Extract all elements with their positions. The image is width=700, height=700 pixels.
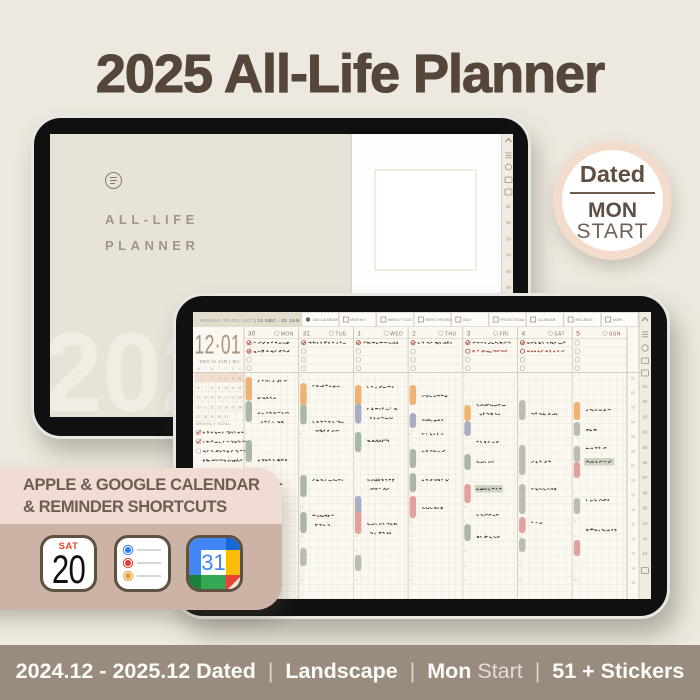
- svg-text:03: 03: [506, 236, 511, 241]
- svg-text:12: 12: [643, 551, 648, 556]
- svg-text:14: 14: [409, 563, 413, 567]
- svg-text:28: 28: [203, 415, 207, 419]
- svg-text:30: 30: [248, 331, 256, 338]
- svg-text:SAT: SAT: [554, 332, 565, 338]
- svg-text:11: 11: [300, 520, 303, 524]
- svg-text:04: 04: [643, 430, 648, 435]
- svg-text:5: 5: [239, 377, 241, 381]
- svg-text:3: 3: [225, 377, 227, 381]
- svg-text:13: 13: [409, 549, 413, 553]
- svg-text:15: 15: [300, 578, 304, 582]
- svg-text:31: 31: [303, 331, 311, 338]
- svg-text:12: 12: [355, 534, 359, 538]
- svg-text:01: 01: [506, 204, 511, 209]
- svg-text:13: 13: [197, 396, 201, 400]
- svg-text:10: 10: [631, 508, 635, 512]
- svg-text:08: 08: [643, 490, 648, 495]
- svg-text:SUN: SUN: [609, 332, 621, 338]
- svg-text:M: M: [197, 367, 200, 371]
- svg-text:TUE: TUE: [335, 332, 347, 338]
- svg-text:03: 03: [631, 406, 635, 410]
- svg-text:WEEKLY GOAL: WEEKLY GOAL: [196, 421, 231, 426]
- svg-text:11: 11: [409, 520, 412, 524]
- svg-text:04: 04: [631, 420, 635, 424]
- svg-text:WORK: WORK: [613, 318, 624, 322]
- svg-text:4: 4: [522, 331, 526, 338]
- svg-text:12: 12: [300, 534, 304, 538]
- svg-text:11: 11: [231, 386, 235, 390]
- svg-text:09: 09: [631, 493, 635, 497]
- svg-text:WED: WED: [390, 332, 403, 338]
- svg-text:WELLNESS: WELLNESS: [575, 318, 592, 322]
- svg-text:11: 11: [643, 536, 648, 541]
- svg-text:2: 2: [218, 377, 220, 381]
- svg-text:13: 13: [355, 549, 359, 553]
- svg-text:T: T: [218, 367, 220, 371]
- svg-text:10: 10: [224, 386, 228, 390]
- svg-text:15: 15: [631, 581, 635, 585]
- svg-text:30: 30: [217, 415, 221, 419]
- svg-text:06: 06: [631, 450, 635, 454]
- svg-text:12: 12: [519, 534, 523, 538]
- svg-text:05: 05: [506, 269, 511, 274]
- svg-text:02: 02: [506, 220, 511, 225]
- svg-text:13: 13: [300, 549, 304, 553]
- svg-text:04: 04: [506, 253, 511, 258]
- svg-text:3: 3: [467, 331, 471, 338]
- svg-text:12: 12: [409, 534, 413, 538]
- svg-text:31: 31: [201, 550, 225, 575]
- svg-text:03: 03: [643, 414, 648, 419]
- svg-text:WEEKLY TO-DO LIST | 12 DEC - 0: WEEKLY TO-DO LIST | 12 DEC - 01 JAN: [200, 318, 300, 324]
- svg-text:11: 11: [631, 523, 635, 527]
- svg-text:08: 08: [631, 479, 635, 483]
- svg-text:12: 12: [573, 534, 577, 538]
- svg-text:13: 13: [573, 549, 577, 553]
- svg-text:9: 9: [218, 386, 220, 390]
- svg-text:21: 21: [203, 405, 207, 409]
- svg-text:20: 20: [197, 405, 201, 409]
- svg-text:WEEKLY REVIEW: WEEKLY REVIEW: [425, 318, 451, 322]
- svg-text:CALENDAR: CALENDAR: [538, 318, 556, 322]
- svg-text:DAILY: DAILY: [463, 318, 473, 322]
- svg-text:02: 02: [643, 399, 648, 404]
- svg-text:MON: MON: [281, 332, 294, 338]
- svg-text:11: 11: [519, 520, 522, 524]
- svg-text:FRI: FRI: [500, 332, 510, 338]
- svg-text:06: 06: [643, 460, 648, 465]
- svg-text:PROJECT/GOAL: PROJECT/GOAL: [500, 318, 525, 322]
- svg-text:10: 10: [573, 505, 577, 509]
- svg-text:14: 14: [519, 563, 523, 567]
- svg-text:10: 10: [643, 521, 648, 526]
- svg-text:23: 23: [217, 405, 221, 409]
- svg-text:15: 15: [355, 578, 359, 582]
- svg-text:25: 25: [231, 405, 235, 409]
- svg-text:4: 4: [232, 377, 234, 381]
- svg-text:1: 1: [357, 331, 361, 338]
- svg-text:01: 01: [631, 377, 635, 381]
- svg-text:07: 07: [631, 464, 635, 468]
- svg-text:15: 15: [464, 578, 468, 582]
- svg-text:02: 02: [631, 391, 635, 395]
- svg-text:6: 6: [198, 386, 200, 390]
- svg-text:12: 12: [631, 537, 635, 541]
- svg-text:31: 31: [224, 415, 228, 419]
- svg-text:15: 15: [409, 578, 413, 582]
- svg-text:07: 07: [643, 475, 648, 480]
- svg-text:5: 5: [576, 331, 580, 338]
- svg-text:MONTHLY: MONTHLY: [350, 318, 366, 322]
- svg-text:10: 10: [519, 505, 523, 509]
- svg-text:14: 14: [355, 563, 359, 567]
- svg-text:16: 16: [217, 396, 221, 400]
- svg-text:05: 05: [643, 445, 648, 450]
- svg-text:29: 29: [210, 415, 214, 419]
- svg-text:7: 7: [204, 386, 206, 390]
- svg-text:12: 12: [464, 534, 468, 538]
- svg-text:15: 15: [519, 578, 523, 582]
- svg-text:T: T: [204, 367, 206, 371]
- svg-text:11: 11: [464, 520, 467, 524]
- svg-text:13: 13: [631, 552, 635, 556]
- svg-text:05: 05: [631, 435, 635, 439]
- svg-text:10: 10: [300, 505, 304, 509]
- svg-text:2: 2: [412, 331, 416, 338]
- svg-text:18: 18: [231, 396, 235, 400]
- svg-text:06: 06: [506, 285, 511, 290]
- svg-text:DEC to JAN | W1: DEC to JAN | W1: [200, 359, 240, 364]
- svg-text:26: 26: [238, 405, 242, 409]
- svg-text:24: 24: [224, 405, 228, 409]
- svg-text:11: 11: [355, 520, 358, 524]
- svg-text:14: 14: [300, 563, 304, 567]
- svg-text:01: 01: [643, 384, 648, 389]
- svg-text:13: 13: [519, 549, 523, 553]
- svg-text:14: 14: [631, 566, 635, 570]
- svg-text:10: 10: [464, 505, 468, 509]
- svg-text:10: 10: [409, 505, 413, 509]
- svg-text:22: 22: [210, 405, 214, 409]
- svg-text:14: 14: [203, 396, 207, 400]
- svg-text:27: 27: [197, 415, 201, 419]
- svg-text:11: 11: [573, 520, 576, 524]
- svg-text:13: 13: [464, 549, 468, 553]
- svg-text:F: F: [225, 367, 227, 371]
- svg-text:WEEKLY TO-DO: WEEKLY TO-DO: [388, 318, 413, 322]
- svg-text:THU: THU: [445, 332, 457, 338]
- svg-text:1: 1: [211, 377, 213, 381]
- svg-text:09: 09: [643, 506, 648, 511]
- svg-text:15: 15: [210, 396, 214, 400]
- svg-text:8: 8: [211, 386, 213, 390]
- svg-text:17: 17: [224, 396, 228, 400]
- svg-text:10: 10: [355, 505, 359, 509]
- svg-text:14: 14: [573, 563, 577, 567]
- svg-text:19: 19: [238, 396, 242, 400]
- svg-text:12·01: 12·01: [195, 329, 242, 360]
- svg-text:14: 14: [464, 563, 468, 567]
- svg-text:15: 15: [573, 578, 577, 582]
- svg-text:ADD CALENDAR: ADD CALENDAR: [313, 318, 339, 322]
- svg-text:12: 12: [238, 386, 242, 390]
